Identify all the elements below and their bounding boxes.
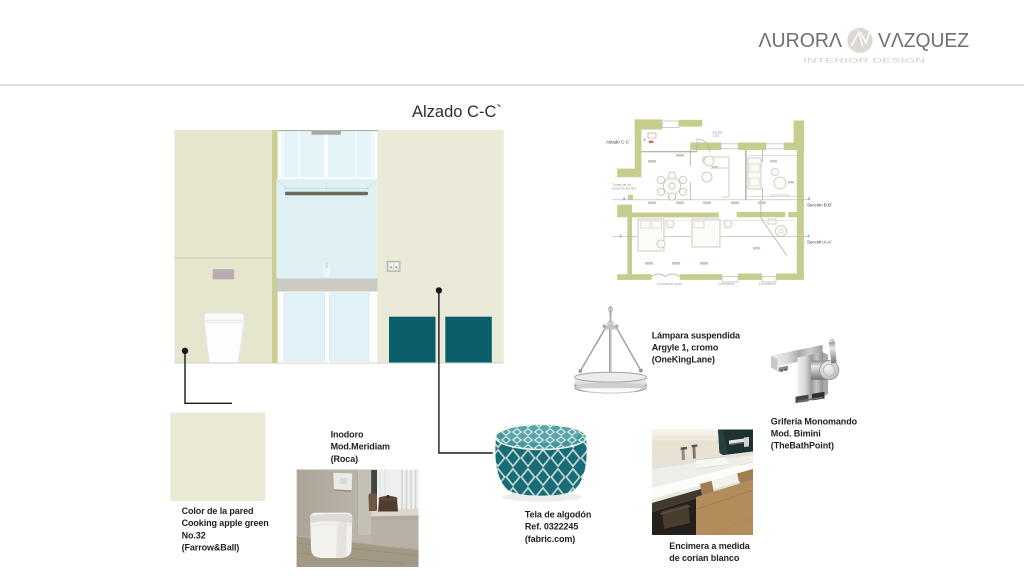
svg-text:1:50: 1:50 <box>713 134 719 138</box>
svg-text:ΛURORΛ: ΛURORΛ <box>759 30 843 52</box>
svg-text:Inodoro: Inodoro <box>331 430 364 440</box>
svg-text:Mod. Bimini: Mod. Bimini <box>771 429 821 439</box>
svg-text:(OneKingLane): (OneKingLane) <box>652 355 715 365</box>
svg-text:Cooking apple green: Cooking apple green <box>182 518 269 528</box>
svg-text:Grifería Monomando: Grifería Monomando <box>771 417 858 427</box>
svg-text:punto de técnica: punto de técnica <box>613 187 637 191</box>
svg-text:Dormitorio: Dormitorio <box>759 282 776 286</box>
svg-text:Lámpara suspendida: Lámpara suspendida <box>652 331 741 341</box>
svg-text:Alzado C-C`: Alzado C-C` <box>606 140 631 146</box>
svg-text:Mod.Meridiam: Mod.Meridiam <box>331 442 390 452</box>
svg-text:Alzado C-C`: Alzado C-C` <box>412 103 502 121</box>
svg-text:Argyle 1, cromo: Argyle 1, cromo <box>652 343 719 353</box>
svg-text:Tela de algodón: Tela de algodón <box>525 510 591 520</box>
svg-text:Encimera a medida: Encimera a medida <box>669 541 750 551</box>
svg-text:(fabric.com): (fabric.com) <box>525 534 575 544</box>
svg-text:No.32: No.32 <box>182 530 206 540</box>
svg-text:(Farrow&Ball): (Farrow&Ball) <box>182 543 240 553</box>
svg-text:Dormitorio ppal.: Dormitorio ppal. <box>657 282 682 286</box>
svg-text:VΛZQUEZ: VΛZQUEZ <box>878 30 969 52</box>
svg-text:(TheBathPoint): (TheBathPoint) <box>771 441 834 451</box>
svg-text:Sección B-B`: Sección B-B` <box>807 203 833 209</box>
svg-text:Dormitorio: Dormitorio <box>718 282 735 286</box>
svg-text:de corian blanco: de corian blanco <box>669 553 740 563</box>
svg-text:Sección A-A`: Sección A-A` <box>807 240 833 246</box>
svg-text:Color de la pared: Color de la pared <box>182 506 254 516</box>
svg-text:INTERIOR DESIGN: INTERIOR DESIGN <box>803 58 926 65</box>
svg-text:(Roca): (Roca) <box>331 454 359 464</box>
svg-text:Ref. 0322245: Ref. 0322245 <box>525 522 578 532</box>
